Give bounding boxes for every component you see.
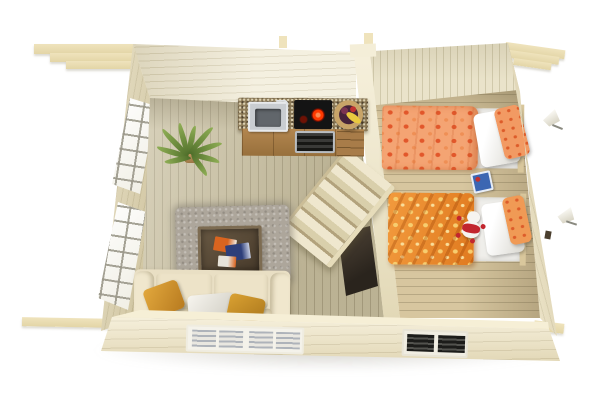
fruit-basket xyxy=(334,100,363,129)
partition-wall-cap xyxy=(350,44,376,58)
window-blind-panel xyxy=(192,330,216,348)
drawer-stack xyxy=(337,131,364,156)
wall-socket xyxy=(544,231,551,240)
oven xyxy=(295,131,335,153)
plum xyxy=(341,107,348,114)
louvered-window xyxy=(402,329,469,358)
teddy-paw xyxy=(456,215,462,221)
window-blind-panel xyxy=(249,331,273,349)
front-window xyxy=(186,324,305,354)
window-blind-panel xyxy=(219,330,243,348)
floral-duvet xyxy=(382,105,479,170)
blue-book xyxy=(470,170,494,194)
window-blind-panel xyxy=(276,332,300,350)
magazine xyxy=(218,255,237,267)
teddy-paw xyxy=(470,238,476,244)
faucet xyxy=(276,100,288,109)
teddy-paw xyxy=(480,224,486,230)
apple xyxy=(350,106,356,112)
potted-plant xyxy=(158,110,222,172)
kitchen-counter xyxy=(238,96,368,159)
sink-basin xyxy=(255,109,281,127)
teddy-bear xyxy=(452,208,490,249)
roof-beam xyxy=(66,61,138,69)
cooktop xyxy=(294,100,332,129)
burner-glow xyxy=(311,108,325,122)
burner-off xyxy=(299,115,308,124)
teddy-paw xyxy=(455,232,461,238)
louver-panel xyxy=(407,334,435,352)
cabin-floorplan-render xyxy=(0,0,600,400)
wall-post-end xyxy=(279,36,287,48)
lamp-cable xyxy=(552,124,563,130)
louver-panel xyxy=(438,335,466,353)
lamp-cable xyxy=(566,220,577,225)
kitchen-sink xyxy=(248,102,288,132)
